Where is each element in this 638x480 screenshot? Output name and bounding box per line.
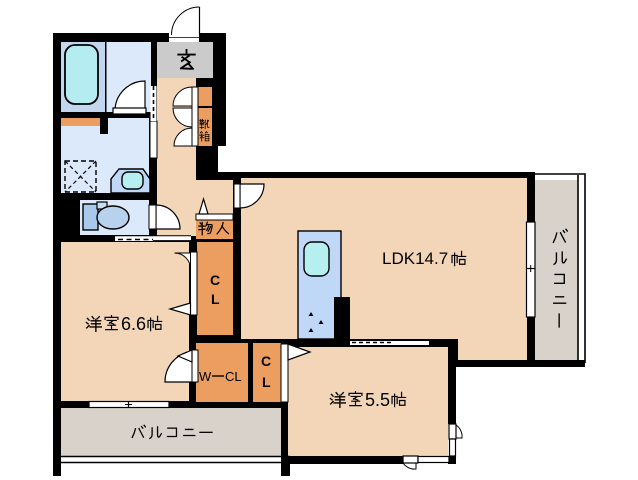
svg-text:LDK14.7: LDK14.7 <box>382 249 448 268</box>
svg-text:C: C <box>261 353 271 369</box>
svg-text:CL: CL <box>225 369 242 384</box>
svg-text:W: W <box>199 369 212 384</box>
svg-text:5.5: 5.5 <box>365 390 390 410</box>
svg-text:L: L <box>262 374 271 390</box>
svg-text:L: L <box>211 291 220 307</box>
svg-text:C: C <box>210 272 220 288</box>
svg-text:6.6: 6.6 <box>121 314 146 334</box>
